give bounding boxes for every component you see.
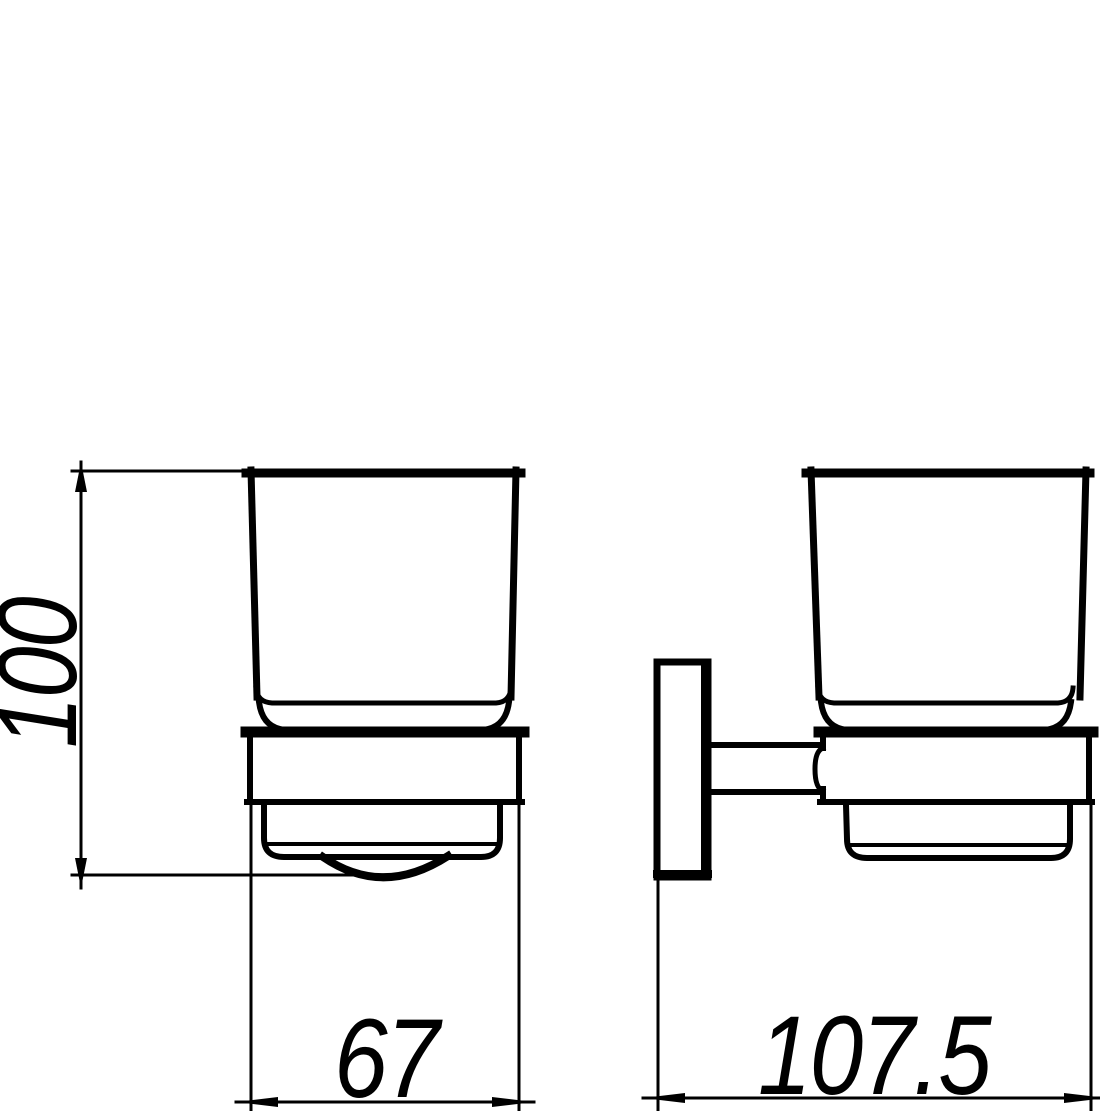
tumbler-holder-drawing: 100 67 107.5 [0, 0, 1100, 1111]
width-dimension-label: 67 [334, 996, 443, 1111]
drawing-background [0, 0, 1100, 1111]
front-glass-right-edge [511, 470, 516, 697]
technical-drawing-page: 100 67 107.5 [0, 0, 1100, 1111]
height-dimension-label: 100 [0, 597, 100, 748]
depth-dimension-label: 107.5 [758, 993, 992, 1111]
